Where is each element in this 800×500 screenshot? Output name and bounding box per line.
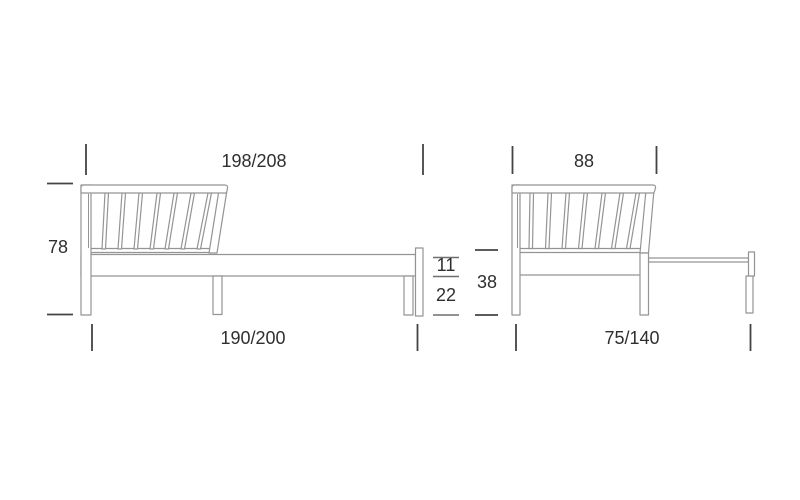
headboard-slat [150, 193, 161, 249]
side-rail [81, 255, 416, 277]
headboard-stile [209, 190, 227, 253]
headboard-slat [118, 193, 126, 249]
headboard-top-rail [81, 185, 228, 193]
headboard-slat [546, 193, 552, 249]
headboard-top-rail [512, 185, 656, 193]
headboard-slats [102, 193, 212, 249]
headboard-slat [165, 193, 178, 249]
dim-label-rail-height: 11 [437, 255, 456, 275]
headboard-slat [579, 193, 588, 249]
bed-side-view [81, 185, 423, 316]
side-rail-end [649, 258, 749, 262]
headboard-slats [529, 193, 640, 249]
end-lower-rails [520, 249, 641, 276]
dimension-labels: 198/208 78 190/200 11 22 88 38 75/140 [48, 151, 660, 348]
headboard-slat [562, 193, 570, 249]
rail-end-plank [749, 252, 755, 276]
bed-technical-drawing: 198/208 78 190/200 11 22 88 38 75/140 [0, 0, 800, 500]
headboard-post [81, 185, 91, 315]
technical-drawing-page: 198/208 78 190/200 11 22 88 38 75/140 [0, 0, 800, 500]
dim-label-under-clearance: 22 [436, 285, 456, 305]
headboard-slat [627, 193, 640, 249]
dim-label-frame-length: 190/200 [220, 328, 285, 348]
bed-end-view [512, 185, 755, 315]
footboard [416, 248, 424, 316]
far-leg [746, 276, 753, 313]
dim-label-overall-height: 78 [48, 237, 68, 257]
dim-label-seat-height: 38 [477, 272, 497, 292]
foot-leg [404, 276, 413, 315]
headboard-slat [134, 193, 143, 249]
headboard-slat [595, 193, 606, 249]
headboard-slat [612, 193, 624, 249]
headboard-slat [197, 193, 212, 249]
dim-label-frame-width: 75/140 [604, 328, 659, 348]
headboard-stile [640, 190, 654, 253]
dim-label-overall-length: 198/208 [221, 151, 286, 171]
dim-label-headboard-width: 88 [574, 151, 594, 171]
middle-leg [213, 276, 222, 315]
headboard-post [512, 185, 520, 315]
near-post [640, 253, 649, 315]
headboard-slat [102, 193, 109, 249]
headboard-slat [181, 193, 195, 249]
headboard-slat [529, 193, 534, 249]
